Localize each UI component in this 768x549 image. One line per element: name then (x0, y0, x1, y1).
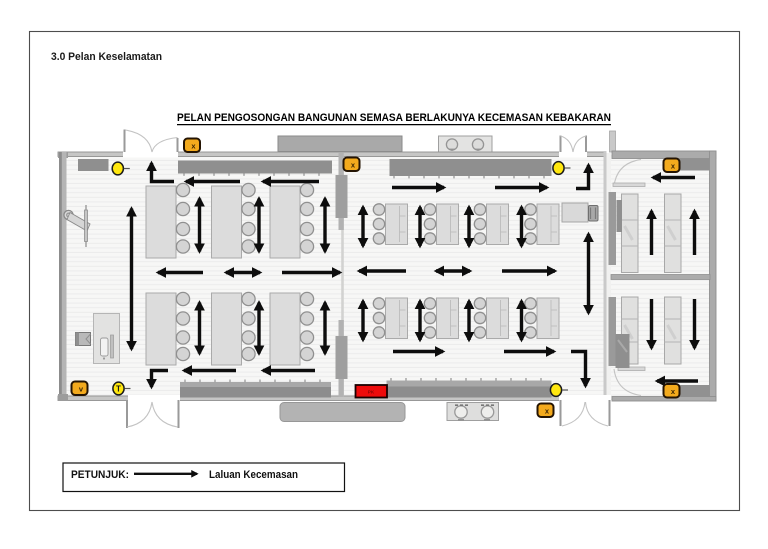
svg-text:3.0 Pelan Keselamatan: 3.0 Pelan Keselamatan (51, 51, 162, 63)
svg-text:PK: PK (368, 390, 375, 395)
svg-text:PELAN PENGOSONGAN BANGUNAN SEM: PELAN PENGOSONGAN BANGUNAN SEMASA BERLAK… (177, 112, 611, 124)
svg-text:Laluan Kecemasan: Laluan Kecemasan (209, 469, 298, 481)
svg-text:PETUNJUK:: PETUNJUK: (71, 469, 129, 481)
svg-text:T: T (116, 385, 121, 394)
